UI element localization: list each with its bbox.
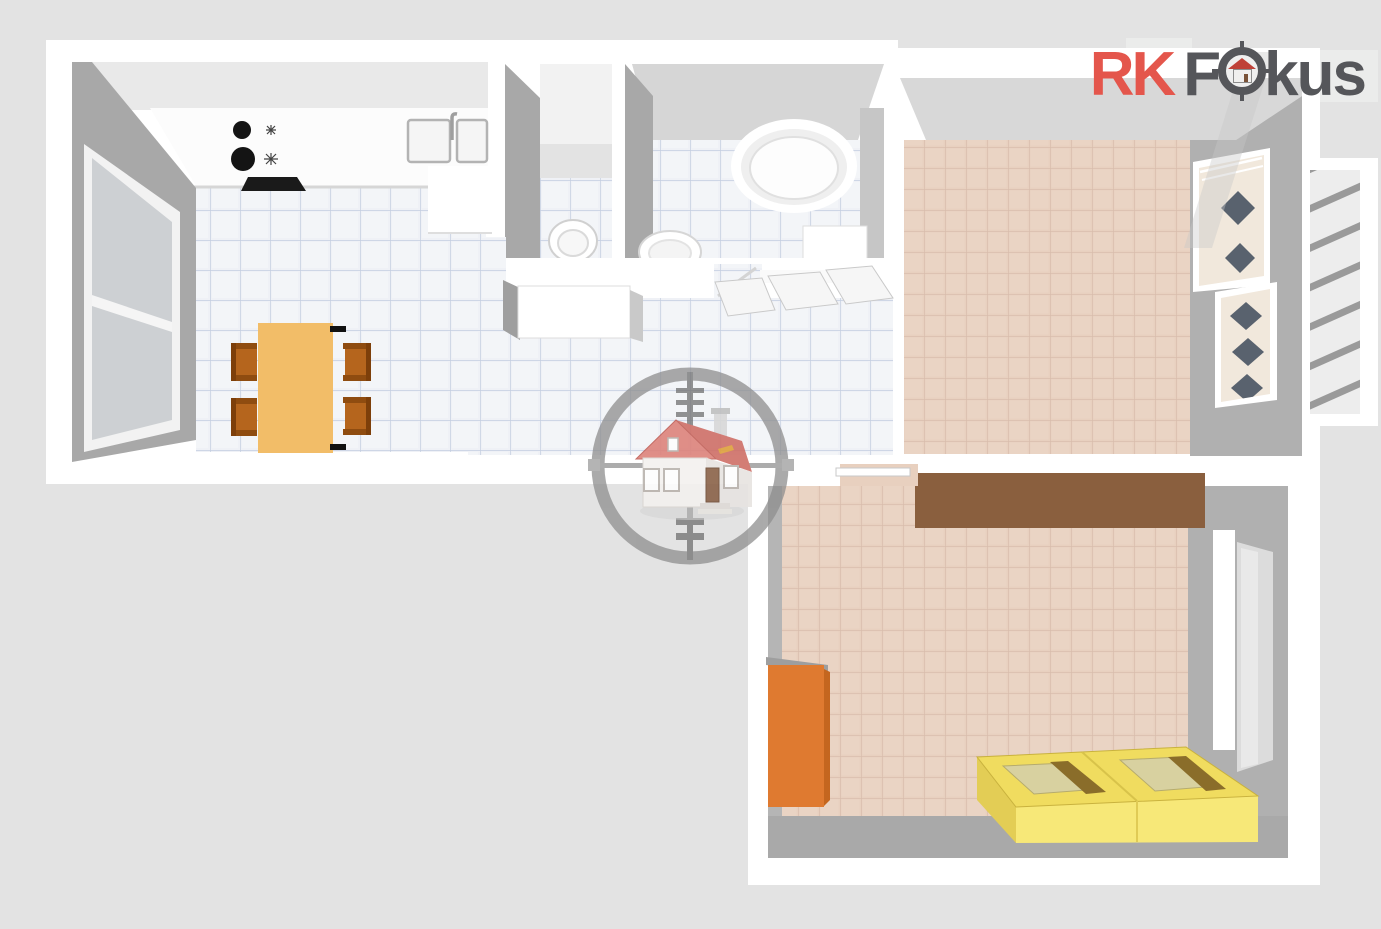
burner-knob-icon <box>264 153 278 165</box>
burner-knob-icon <box>266 125 276 135</box>
wc-room <box>505 64 612 292</box>
bathtub <box>731 119 857 213</box>
sink-basin-right <box>457 120 487 162</box>
burner-small <box>233 121 251 139</box>
chair <box>231 343 257 381</box>
bedroom-door-opening <box>836 464 918 486</box>
brand-word: Fkus <box>1183 44 1365 106</box>
hall-cabinet <box>503 280 643 342</box>
kitchen-back-wall <box>92 62 488 110</box>
toilet <box>549 220 597 262</box>
chair <box>343 397 371 435</box>
kitchen-cabinet-block <box>428 166 492 233</box>
brand-letter-f: F <box>1183 44 1219 106</box>
living-window-lower <box>1215 282 1277 408</box>
burner-large <box>231 147 255 171</box>
floor-plan-rendering <box>0 0 1381 929</box>
dining-table <box>258 323 333 453</box>
bathroom <box>625 64 884 292</box>
chair <box>343 343 371 381</box>
cooktop-front <box>241 177 306 191</box>
table-leg <box>330 326 346 332</box>
chair <box>231 398 257 436</box>
wc-wall-face <box>540 144 612 180</box>
sink-basin-left <box>408 120 450 162</box>
balcony <box>1310 170 1360 414</box>
wc-left-wall <box>505 64 540 292</box>
living-floor <box>904 140 1190 454</box>
kitchen-dining-room <box>72 62 492 462</box>
brand-word-rest: kus <box>1264 44 1365 106</box>
bedroom-window <box>1213 530 1273 772</box>
floor-plan-page: RK Fkus <box>0 0 1381 929</box>
scope-house-icon <box>1218 47 1266 95</box>
wc-back-wall <box>540 64 612 146</box>
bedroom <box>766 464 1288 858</box>
orange-cabinet <box>766 657 830 807</box>
watermark <box>588 372 794 560</box>
balcony-railing <box>1310 170 1360 414</box>
brand-logo: RK Fkus <box>1090 44 1365 106</box>
wardrobe <box>915 473 1205 528</box>
brand-prefix: RK <box>1090 44 1174 106</box>
kitchen-sink <box>408 114 487 162</box>
kitchen-counter <box>150 108 428 186</box>
table-leg <box>330 444 346 450</box>
